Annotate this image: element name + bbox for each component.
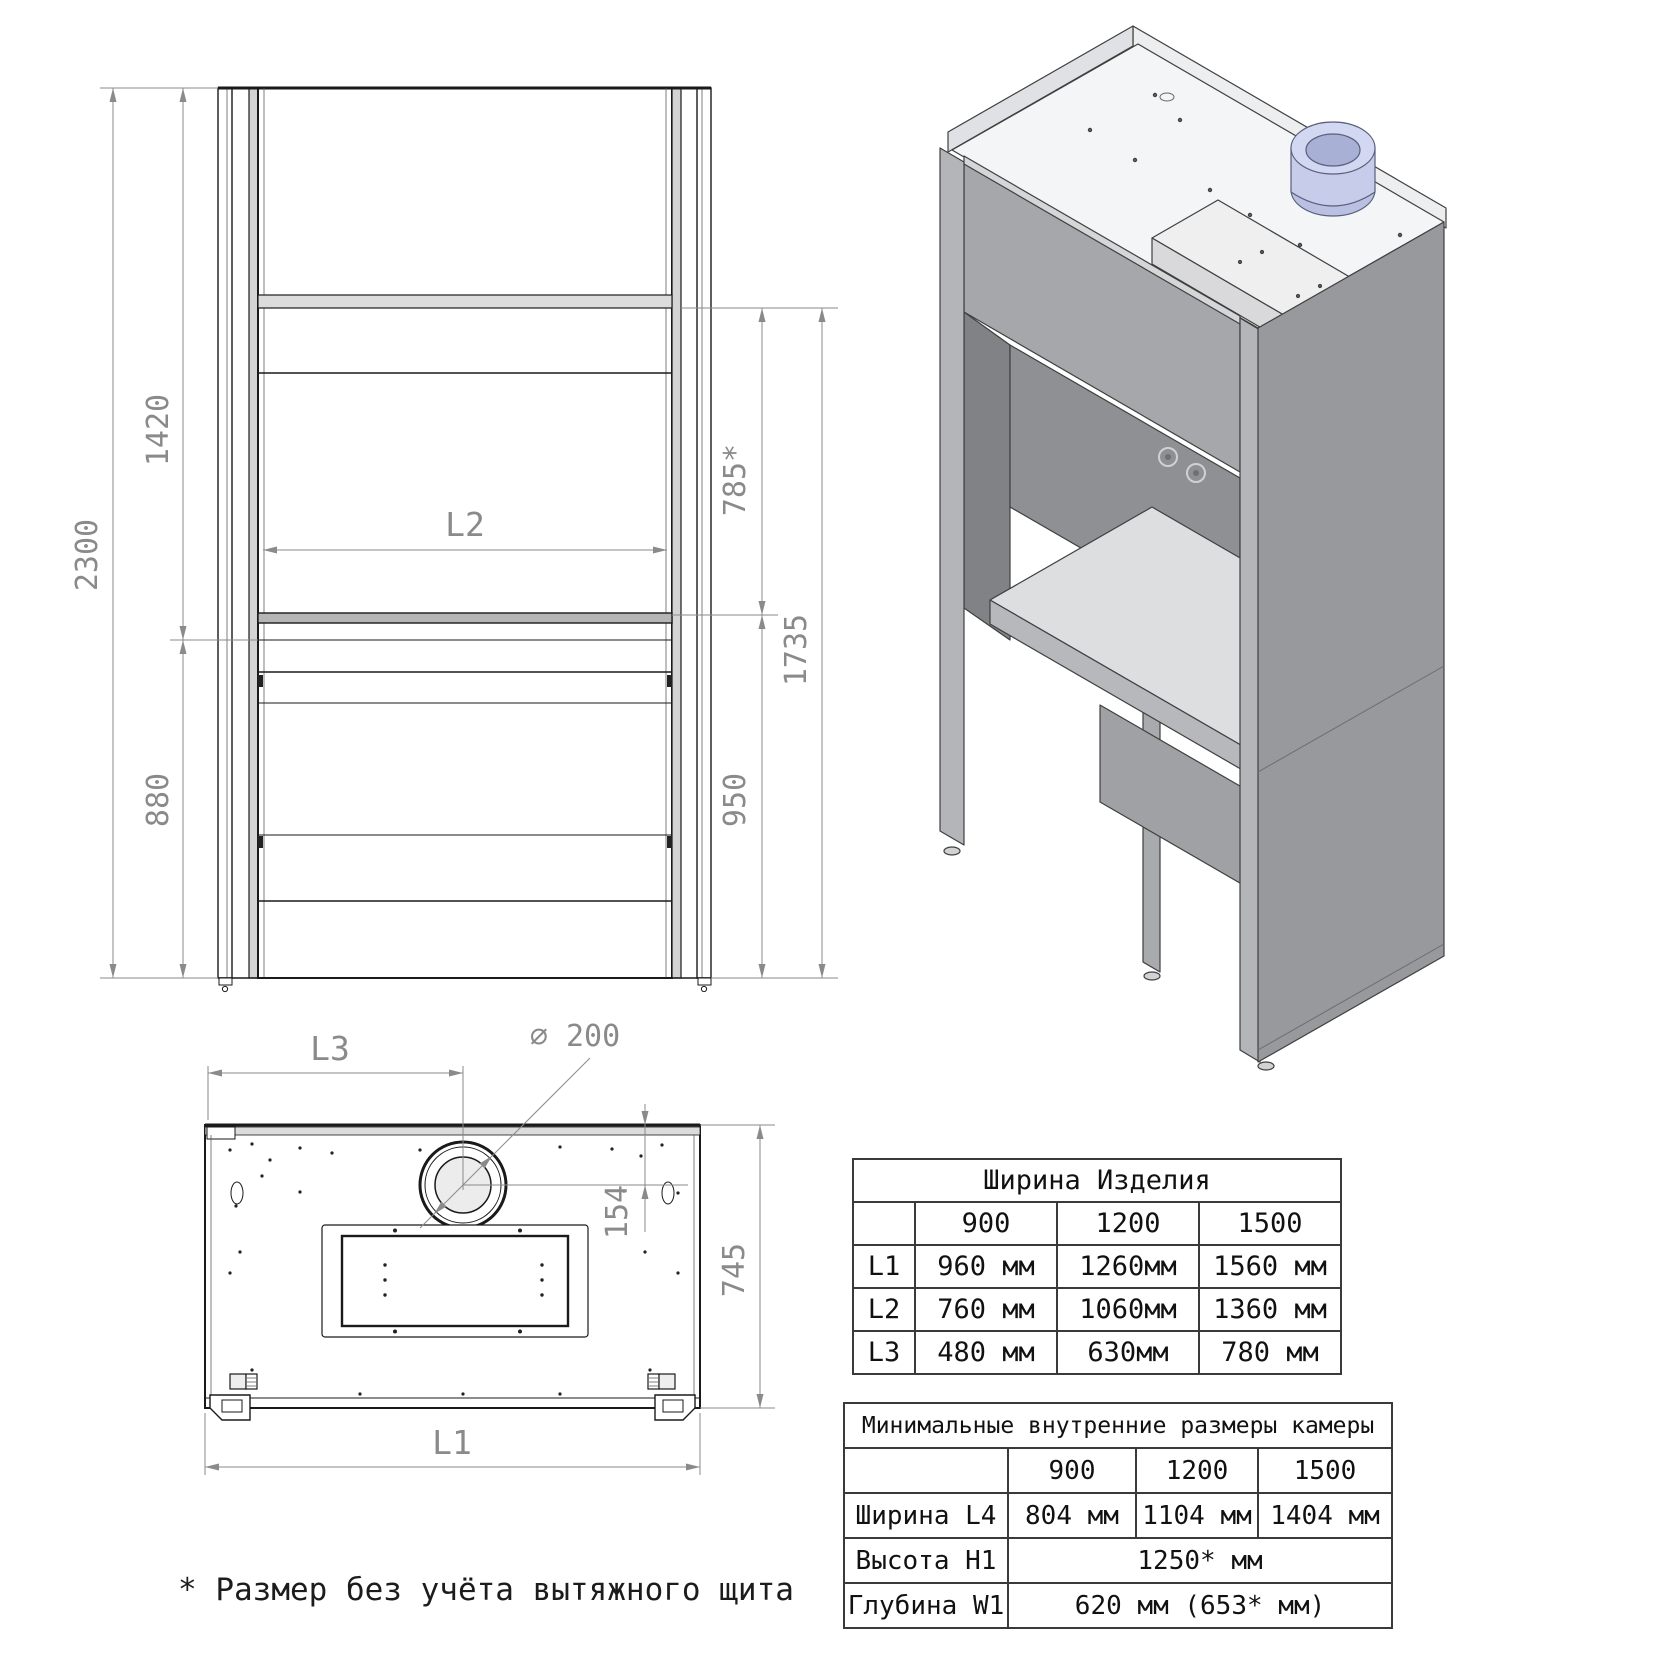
dim-785: 785* — [718, 444, 753, 516]
dim-1420: 1420 — [141, 394, 176, 466]
table-cell: 780 мм — [1199, 1331, 1341, 1374]
dim-diameter: ∅ 200 — [530, 1019, 620, 1054]
duct-collar — [1291, 122, 1375, 216]
row-label: L1 — [853, 1245, 915, 1288]
table-cell: 1060мм — [1057, 1288, 1199, 1331]
col-header-1500: 1500 — [1258, 1448, 1392, 1493]
table-cell: 1560 мм — [1199, 1245, 1341, 1288]
table-row: Высота H1 1250* мм — [844, 1538, 1392, 1583]
dim-950: 950 — [718, 773, 753, 827]
table-title-row: Ширина Изделия — [853, 1159, 1341, 1202]
table-title-row: Минимальные внутренние размеры камеры — [844, 1403, 1392, 1448]
table-cell: 804 мм — [1008, 1493, 1136, 1538]
table-cell: 1404 мм — [1258, 1493, 1392, 1538]
row-label: L3 — [853, 1331, 915, 1374]
dim-l2: L2 — [445, 505, 485, 544]
table-cell: 480 мм — [915, 1331, 1057, 1374]
row-label: Глубина W1 — [844, 1583, 1008, 1628]
isometric-view — [920, 10, 1570, 1100]
table-cell: 1260мм — [1057, 1245, 1199, 1288]
row-label: Ширина L4 — [844, 1493, 1008, 1538]
table-row: L1 960 мм 1260мм 1560 мм — [853, 1245, 1341, 1288]
table-cell: 760 мм — [915, 1288, 1057, 1331]
col-header-1500: 1500 — [1199, 1202, 1341, 1245]
col-header-1200: 1200 — [1057, 1202, 1199, 1245]
dim-l1: L1 — [432, 1423, 472, 1462]
table-row: Глубина W1 620 мм (653* мм) — [844, 1583, 1392, 1628]
table-row: Ширина L4 804 мм 1104 мм 1404 мм — [844, 1493, 1392, 1538]
empty-header-cell — [844, 1448, 1008, 1493]
table-cell-merged: 1250* мм — [1008, 1538, 1392, 1583]
table-header-row: 900 1200 1500 — [844, 1448, 1392, 1493]
table-cell: 960 мм — [915, 1245, 1057, 1288]
dim-l3: L3 — [310, 1029, 350, 1068]
empty-header-cell — [853, 1202, 915, 1245]
row-label: Высота H1 — [844, 1538, 1008, 1583]
adjustable-feet — [219, 978, 711, 992]
dim-880: 880 — [141, 773, 176, 827]
iso-cabinet — [940, 26, 1446, 1070]
product-width-table: Ширина Изделия 900 1200 1500 L1 960 мм 1… — [852, 1158, 1342, 1375]
footnote: * Размер без учёта вытяжного щита — [178, 1572, 794, 1608]
table-title: Минимальные внутренние размеры камеры — [844, 1403, 1392, 1448]
row-label: L2 — [853, 1288, 915, 1331]
dim-745: 745 — [717, 1243, 752, 1297]
col-header-1200: 1200 — [1136, 1448, 1258, 1493]
table-cell: 630мм — [1057, 1331, 1199, 1374]
top-view-structure — [205, 1125, 700, 1420]
col-header-900: 900 — [915, 1202, 1057, 1245]
mounting-plate — [322, 1225, 588, 1337]
col-header-900: 900 — [1008, 1448, 1136, 1493]
top-view: L3 ∅ 200 154 745 L1 — [100, 1000, 820, 1500]
dim-2300: 2300 — [70, 519, 105, 591]
inner-dimensions-table: Минимальные внутренние размеры камеры 90… — [843, 1402, 1393, 1629]
table-cell: 1360 мм — [1199, 1288, 1341, 1331]
table-cell: 1104 мм — [1136, 1493, 1258, 1538]
table-row: L2 760 мм 1060мм 1360 мм — [853, 1288, 1341, 1331]
table-cell-merged: 620 мм (653* мм) — [1008, 1583, 1392, 1628]
table-title: Ширина Изделия — [853, 1159, 1341, 1202]
table-row: L3 480 мм 630мм 780 мм — [853, 1331, 1341, 1374]
dim-154: 154 — [600, 1185, 635, 1239]
front-view: 2300 1420 880 L2 785* 950 — [0, 0, 840, 1010]
dim-1735: 1735 — [779, 614, 814, 686]
side-panel — [1258, 222, 1444, 1062]
drawing-sheet: 2300 1420 880 L2 785* 950 — [0, 0, 1680, 1680]
table-header-row: 900 1200 1500 — [853, 1202, 1341, 1245]
